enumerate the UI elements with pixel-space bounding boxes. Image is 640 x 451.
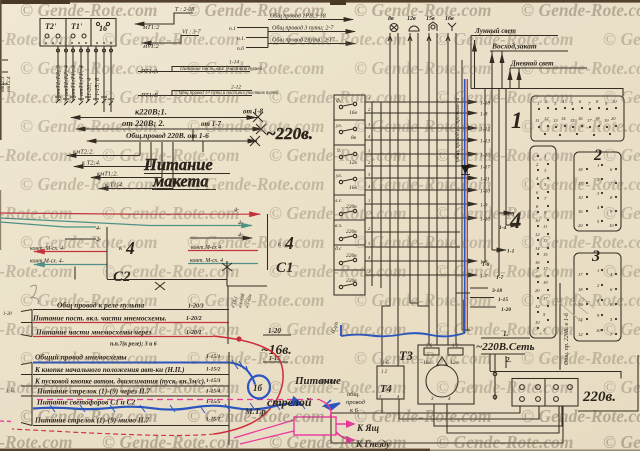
svg-text:© Gende-Rote.com: © Gende-Rote.com	[269, 203, 407, 223]
svg-text:© Gende-Rote.com: © Gende-Rote.com	[269, 377, 407, 397]
svg-text:17: 17	[578, 272, 583, 277]
svg-text:© Gende-Rote.com: © Gende-Rote.com	[354, 348, 492, 368]
svg-text:© Gende-Rote.com: © Gende-Rote.com	[436, 29, 574, 49]
svg-text:1-4: 1-4	[499, 225, 507, 231]
svg-text:ул.: ул.	[335, 173, 342, 179]
svg-text:© Gende-Rote.com: © Gende-Rote.com	[603, 29, 640, 49]
svg-text:© Gende-Rote.com: © Gende-Rote.com	[354, 116, 492, 136]
svg-text:1 2: 1 2	[381, 370, 388, 375]
svg-text:© Gende-Rote.com: © Gende-Rote.com	[269, 145, 407, 165]
svg-text:© Gende-Rote.com: © Gende-Rote.com	[269, 29, 407, 49]
svg-text:© Gende-Rote.com: © Gende-Rote.com	[0, 203, 73, 223]
svg-text:© Gende-Rote.com: © Gende-Rote.com	[20, 174, 158, 194]
svg-text:© Gende-Rote.com: © Gende-Rote.com	[521, 0, 640, 20]
svg-text:18: 18	[578, 167, 583, 172]
svg-text:© Gende-Rote.com: © Gende-Rote.com	[354, 232, 492, 252]
svg-text:20: 20	[578, 223, 583, 228]
svg-text:© Gende-Rote.com: © Gende-Rote.com	[603, 145, 640, 165]
svg-text:© Gende-Rote.com: © Gende-Rote.com	[521, 116, 640, 136]
svg-text:© Gende-Rote.com: © Gende-Rote.com	[102, 203, 240, 223]
svg-text:© Gende-Rote.com: © Gende-Rote.com	[0, 319, 73, 339]
svg-text:© Gende-Rote.com: © Gende-Rote.com	[20, 0, 158, 20]
svg-text:1-15; 6: 1-15; 6	[94, 77, 101, 96]
svg-text:в.з.: в.з.	[335, 223, 342, 229]
svg-text:© Gende-Rote.com: © Gende-Rote.com	[0, 145, 73, 165]
svg-text:© Gende-Rote.com: © Gende-Rote.com	[187, 290, 325, 310]
svg-text:© Gende-Rote.com: © Gende-Rote.com	[354, 174, 492, 194]
svg-text:© Gende-Rote.com: © Gende-Rote.com	[521, 232, 640, 252]
svg-text:15: 15	[543, 252, 548, 257]
svg-text:2: 2	[593, 147, 602, 164]
svg-text:© Gende-Rote.com: © Gende-Rote.com	[436, 87, 574, 107]
svg-text:© Gende-Rote.com: © Gende-Rote.com	[436, 319, 574, 339]
svg-text:© Gende-Rote.com: © Gende-Rote.com	[354, 290, 492, 310]
svg-text:© Gende-Rote.com: © Gende-Rote.com	[521, 348, 640, 368]
svg-text:1-20; 4: 1-20; 4	[86, 78, 93, 96]
svg-text:10: 10	[596, 328, 601, 333]
svg-text:© Gende-Rote.com: © Gende-Rote.com	[187, 174, 325, 194]
svg-text:© Gende-Rote.com: © Gende-Rote.com	[603, 261, 640, 281]
svg-text:1-1: 1-1	[507, 249, 515, 255]
svg-text:1-20: 1-20	[3, 312, 12, 317]
svg-text:10: 10	[578, 195, 583, 200]
svg-text:© Gende-Rote.com: © Gende-Rote.com	[102, 377, 240, 397]
svg-text:© Gende-Rote.com: © Gende-Rote.com	[102, 432, 240, 451]
svg-text:к220В;1.: к220В;1.	[135, 107, 167, 117]
svg-text:© Gende-Rote.com: © Gende-Rote.com	[436, 261, 574, 281]
svg-text:© Gende-Rote.com: © Gende-Rote.com	[187, 348, 325, 368]
svg-text:© Gende-Rote.com: © Gende-Rote.com	[20, 58, 158, 78]
svg-text:© Gende-Rote.com: © Gende-Rote.com	[20, 348, 158, 368]
svg-text:© Gende-Rote.com: © Gende-Rote.com	[102, 319, 240, 339]
svg-text:1: 1	[597, 268, 599, 273]
svg-text:© Gende-Rote.com: © Gende-Rote.com	[102, 29, 240, 49]
svg-text:© Gende-Rote.com: © Gende-Rote.com	[269, 87, 407, 107]
svg-text:д.с: д.с	[335, 245, 342, 252]
svg-text:© Gende-Rote.com: © Gende-Rote.com	[603, 377, 640, 397]
svg-text:© Gende-Rote.com: © Gende-Rote.com	[187, 406, 325, 426]
svg-text:© Gende-Rote.com: © Gende-Rote.com	[354, 0, 492, 20]
svg-text:© Gende-Rote.com: © Gende-Rote.com	[436, 203, 574, 223]
svg-text:1-20: 1-20	[501, 307, 511, 313]
svg-text:п.п.7(к реле); 3 и 6: п.п.7(к реле); 3 и 6	[110, 341, 157, 348]
svg-text:11: 11	[543, 224, 547, 229]
svg-text:© Gende-Rote.com: © Gende-Rote.com	[187, 116, 325, 136]
svg-text:© Gende-Rote.com: © Gende-Rote.com	[102, 145, 240, 165]
svg-text:© Gende-Rote.com: © Gende-Rote.com	[20, 232, 158, 252]
svg-text:© Gende-Rote.com: © Gende-Rote.com	[269, 432, 407, 451]
svg-text:© Gende-Rote.com: © Gende-Rote.com	[0, 377, 73, 397]
svg-text:© Gende-Rote.com: © Gende-Rote.com	[521, 290, 640, 310]
svg-text:© Gende-Rote.com: © Gende-Rote.com	[0, 432, 73, 451]
svg-text:кмТ2:2.: кмТ2:2.	[73, 149, 94, 156]
svg-text:© Gende-Rote.com: © Gende-Rote.com	[603, 432, 640, 451]
svg-text:© Gende-Rote.com: © Gende-Rote.com	[187, 232, 325, 252]
svg-text:© Gende-Rote.com: © Gende-Rote.com	[603, 319, 640, 339]
svg-text:© Gende-Rote.com: © Gende-Rote.com	[521, 58, 640, 78]
svg-text:© Gende-Rote.com: © Gende-Rote.com	[269, 261, 407, 281]
svg-text:© Gende-Rote.com: © Gende-Rote.com	[102, 87, 240, 107]
svg-text:© Gende-Rote.com: © Gende-Rote.com	[521, 406, 640, 426]
svg-text:© Gende-Rote.com: © Gende-Rote.com	[603, 87, 640, 107]
svg-text:провод: провод	[346, 399, 366, 406]
svg-text:© Gende-Rote.com: © Gende-Rote.com	[20, 116, 158, 136]
svg-text:к Т2;4.: к Т2;4.	[82, 160, 101, 167]
svg-text:© Gende-Rote.com: © Gende-Rote.com	[20, 406, 158, 426]
svg-text:4-: 4-	[96, 225, 101, 232]
svg-text:© Gende-Rote.com: © Gende-Rote.com	[187, 0, 325, 20]
svg-text:© Gende-Rote.com: © Gende-Rote.com	[436, 145, 574, 165]
svg-text:© Gende-Rote.com: © Gende-Rote.com	[354, 58, 492, 78]
svg-text:© Gende-Rote.com: © Gende-Rote.com	[20, 290, 158, 310]
svg-text:1б: 1б	[253, 383, 263, 393]
svg-text:3-18: 3-18	[491, 288, 502, 294]
svg-text:© Gende-Rote.com: © Gende-Rote.com	[436, 432, 574, 451]
svg-text:© Gende-Rote.com: © Gende-Rote.com	[603, 203, 640, 223]
svg-text:© Gende-Rote.com: © Gende-Rote.com	[0, 87, 73, 107]
svg-text:1-15: 1-15	[498, 297, 508, 303]
svg-text:16: 16	[578, 209, 583, 214]
svg-text:© Gende-Rote.com: © Gende-Rote.com	[269, 319, 407, 339]
svg-text:© Gende-Rote.com: © Gende-Rote.com	[436, 377, 574, 397]
svg-text:© Gende-Rote.com: © Gende-Rote.com	[0, 29, 73, 49]
svg-text:12: 12	[578, 332, 583, 337]
svg-text:© Gende-Rote.com: © Gende-Rote.com	[187, 58, 325, 78]
svg-text:10: 10	[609, 223, 614, 228]
svg-text:ул.: ул.	[335, 123, 342, 129]
svg-text:© Gende-Rote.com: © Gende-Rote.com	[354, 406, 492, 426]
svg-text:© Gende-Rote.com: © Gende-Rote.com	[521, 174, 640, 194]
svg-text:© Gende-Rote.com: © Gende-Rote.com	[102, 261, 240, 281]
svg-text:© Gende-Rote.com: © Gende-Rote.com	[0, 261, 73, 281]
svg-text:Т1': Т1'	[71, 22, 83, 31]
